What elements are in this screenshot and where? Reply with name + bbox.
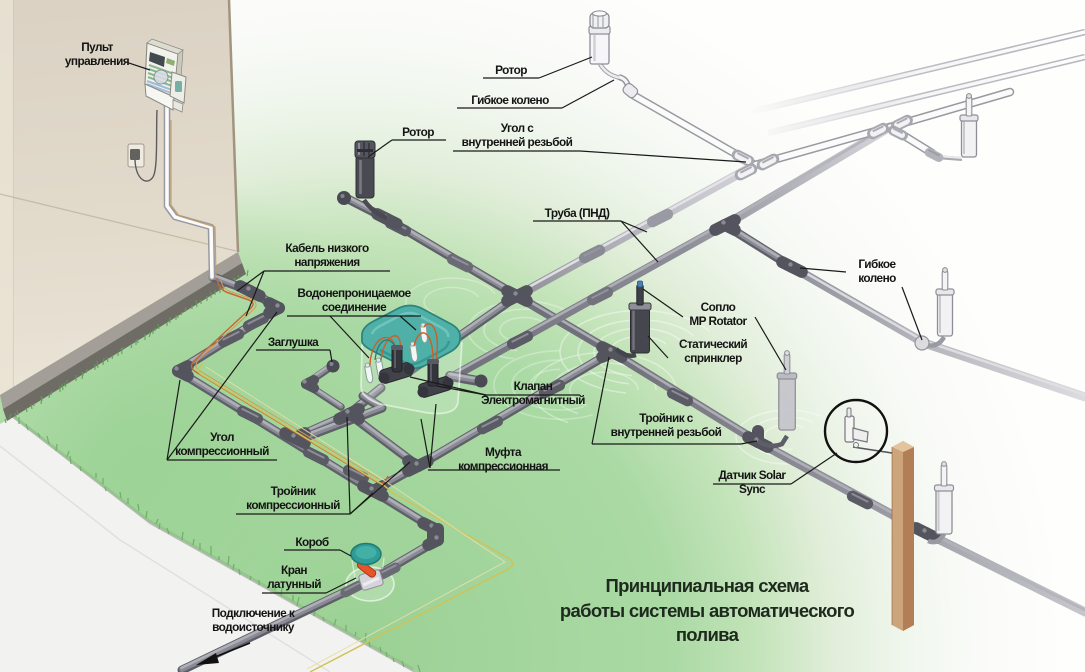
- svg-text:Короб: Короб: [295, 535, 329, 549]
- svg-text:работы системы автоматического: работы системы автоматического: [560, 600, 855, 621]
- svg-text:внутренней резьбой: внутренней резьбой: [611, 425, 722, 439]
- svg-text:соединение: соединение: [322, 300, 387, 314]
- svg-text:Угол: Угол: [210, 430, 234, 444]
- svg-text:Клапан: Клапан: [514, 379, 553, 393]
- svg-text:полива: полива: [676, 624, 740, 645]
- svg-text:колено: колено: [858, 271, 896, 285]
- svg-text:Тройник: Тройник: [271, 484, 316, 498]
- svg-text:водоисточнику: водоисточнику: [212, 620, 295, 634]
- svg-text:Кран: Кран: [281, 563, 307, 577]
- svg-text:Ротор: Ротор: [402, 125, 434, 139]
- svg-text:Пульт: Пульт: [81, 40, 113, 54]
- svg-text:компрессионная: компрессионная: [458, 459, 549, 473]
- svg-text:Ротор: Ротор: [495, 63, 527, 77]
- svg-text:Муфта: Муфта: [485, 445, 522, 459]
- svg-text:Сопло: Сопло: [701, 300, 736, 314]
- svg-text:Водонепроницаемое: Водонепроницаемое: [297, 286, 411, 300]
- svg-text:Кабель низкого: Кабель низкого: [285, 241, 369, 255]
- svg-text:Тройник с: Тройник с: [639, 411, 694, 425]
- svg-text:компрессионный: компрессионный: [246, 498, 340, 512]
- svg-text:латунный: латунный: [267, 577, 321, 591]
- svg-text:Подключение к: Подключение к: [212, 606, 295, 620]
- svg-text:Гибкое: Гибкое: [858, 257, 896, 271]
- svg-text:компрессионный: компрессионный: [175, 444, 269, 458]
- svg-text:Гибкое колено: Гибкое колено: [471, 93, 549, 107]
- svg-text:MP Rotator: MP Rotator: [689, 314, 747, 328]
- svg-text:Принципиальная схема: Принципиальная схема: [606, 575, 810, 596]
- svg-text:напряжения: напряжения: [294, 255, 360, 269]
- svg-text:внутренней резьбой: внутренней резьбой: [462, 135, 573, 149]
- svg-text:Статический: Статический: [679, 337, 747, 351]
- svg-text:Угол с: Угол с: [501, 121, 535, 135]
- svg-text:спринклер: спринклер: [684, 351, 742, 365]
- svg-text:Датчик Solar: Датчик Solar: [719, 468, 787, 482]
- svg-text:управления: управления: [65, 54, 130, 68]
- svg-text:Труба (ПНД): Труба (ПНД): [545, 206, 610, 220]
- svg-text:Заглушка: Заглушка: [268, 335, 319, 349]
